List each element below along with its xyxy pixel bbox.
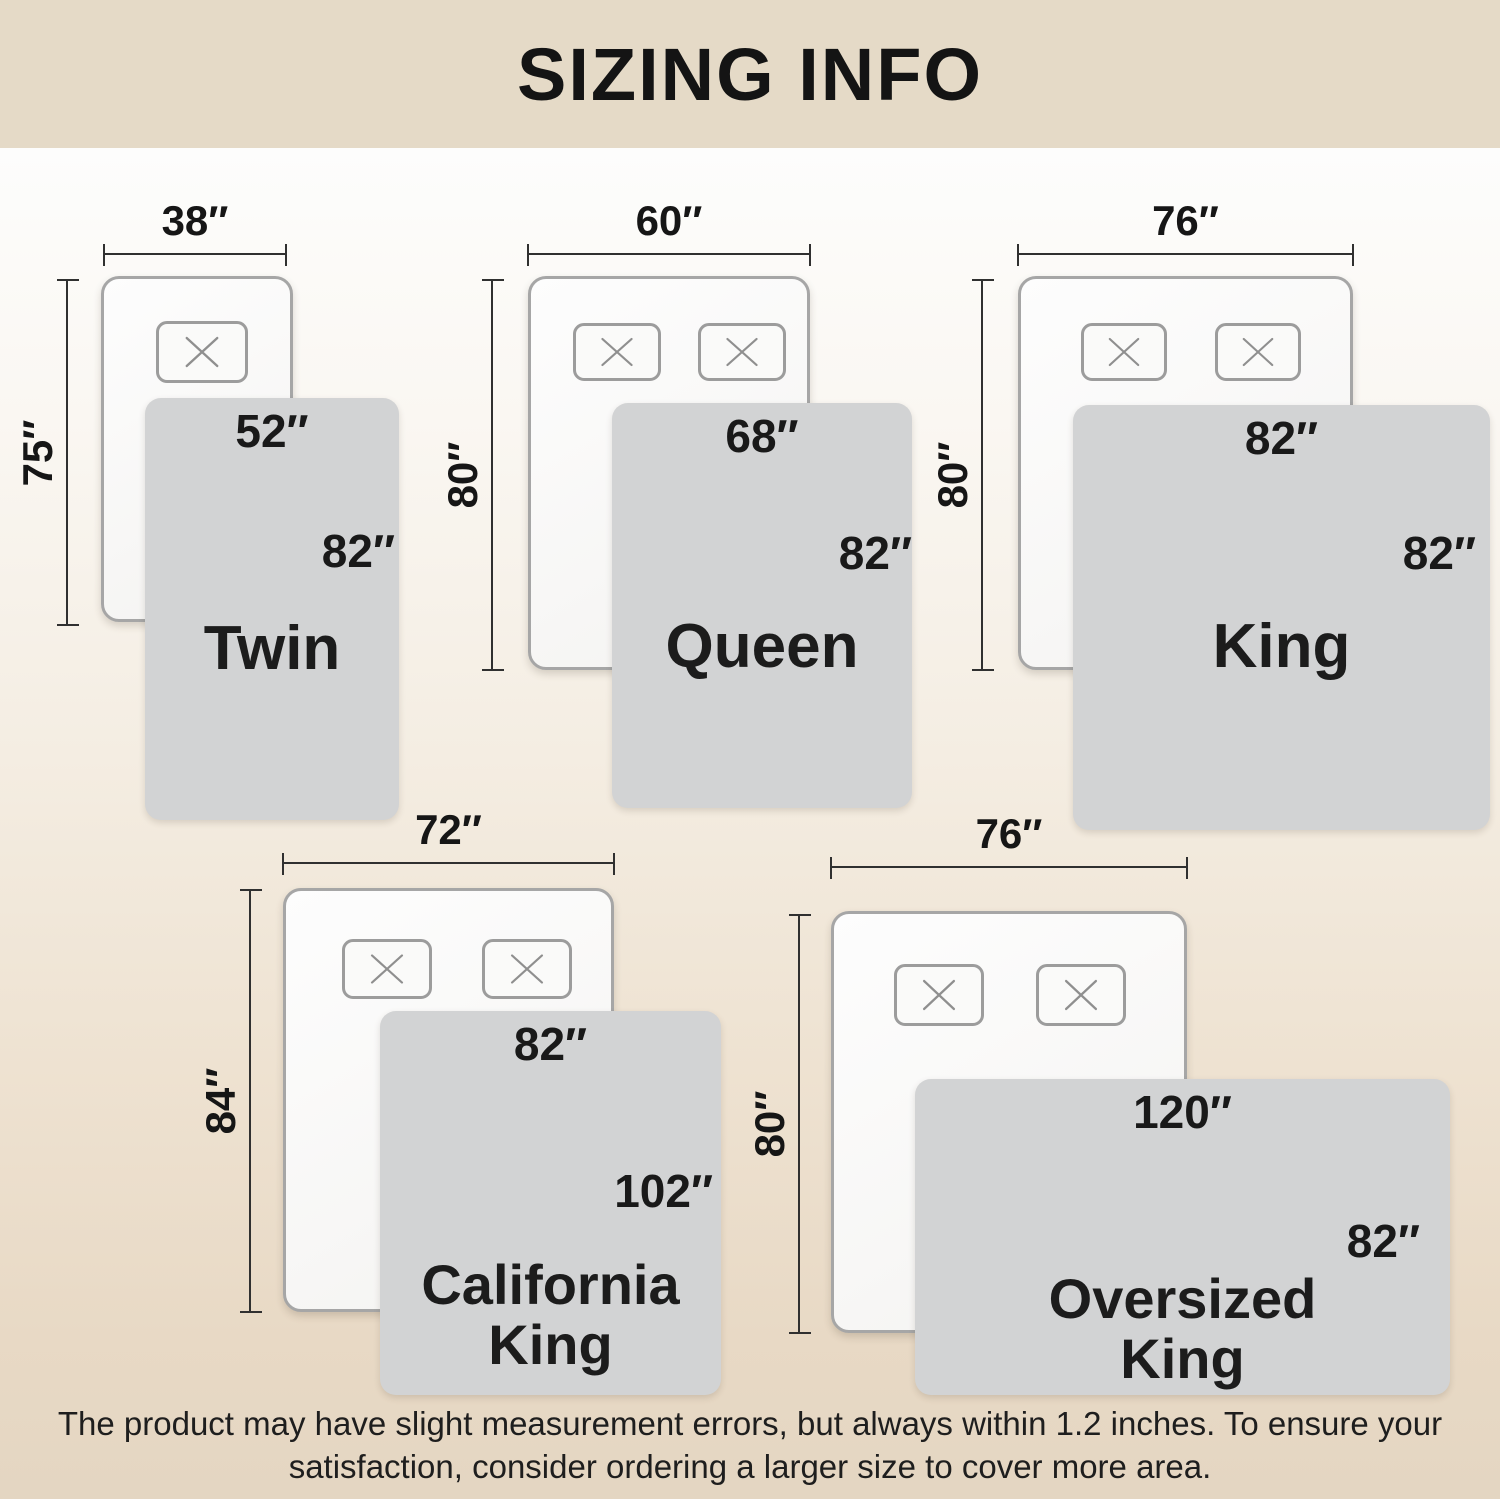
pillow-icon — [894, 964, 984, 1026]
sizing-infographic: SIZING INFO 38″ 75″ 52″ 82″ Twin 60″ 80″ — [0, 0, 1500, 1499]
size-name-label: Oversized King — [983, 1269, 1383, 1389]
blanket-width-label: 120″ — [915, 1085, 1450, 1139]
disclaimer-text: The product may have slight measurement … — [0, 1403, 1500, 1489]
blanket-length-label: 82″ — [1347, 1214, 1420, 1268]
bed-width-dimension: 76″ — [831, 866, 1187, 868]
bed-length-dimension: 80″ — [798, 915, 800, 1333]
bed-width-label: 76″ — [976, 810, 1043, 858]
disclaimer-line-2: satisfaction, consider ordering a larger… — [0, 1446, 1500, 1489]
bed-length-label: 80″ — [747, 1082, 793, 1166]
pillow-icon — [1036, 964, 1126, 1026]
diagram-oversized-king: 76″ 80″ 120″ 82″ Oversized King — [0, 0, 1500, 1499]
blanket: 120″ 82″ Oversized King — [915, 1079, 1450, 1395]
disclaimer-line-1: The product may have slight measurement … — [0, 1403, 1500, 1446]
